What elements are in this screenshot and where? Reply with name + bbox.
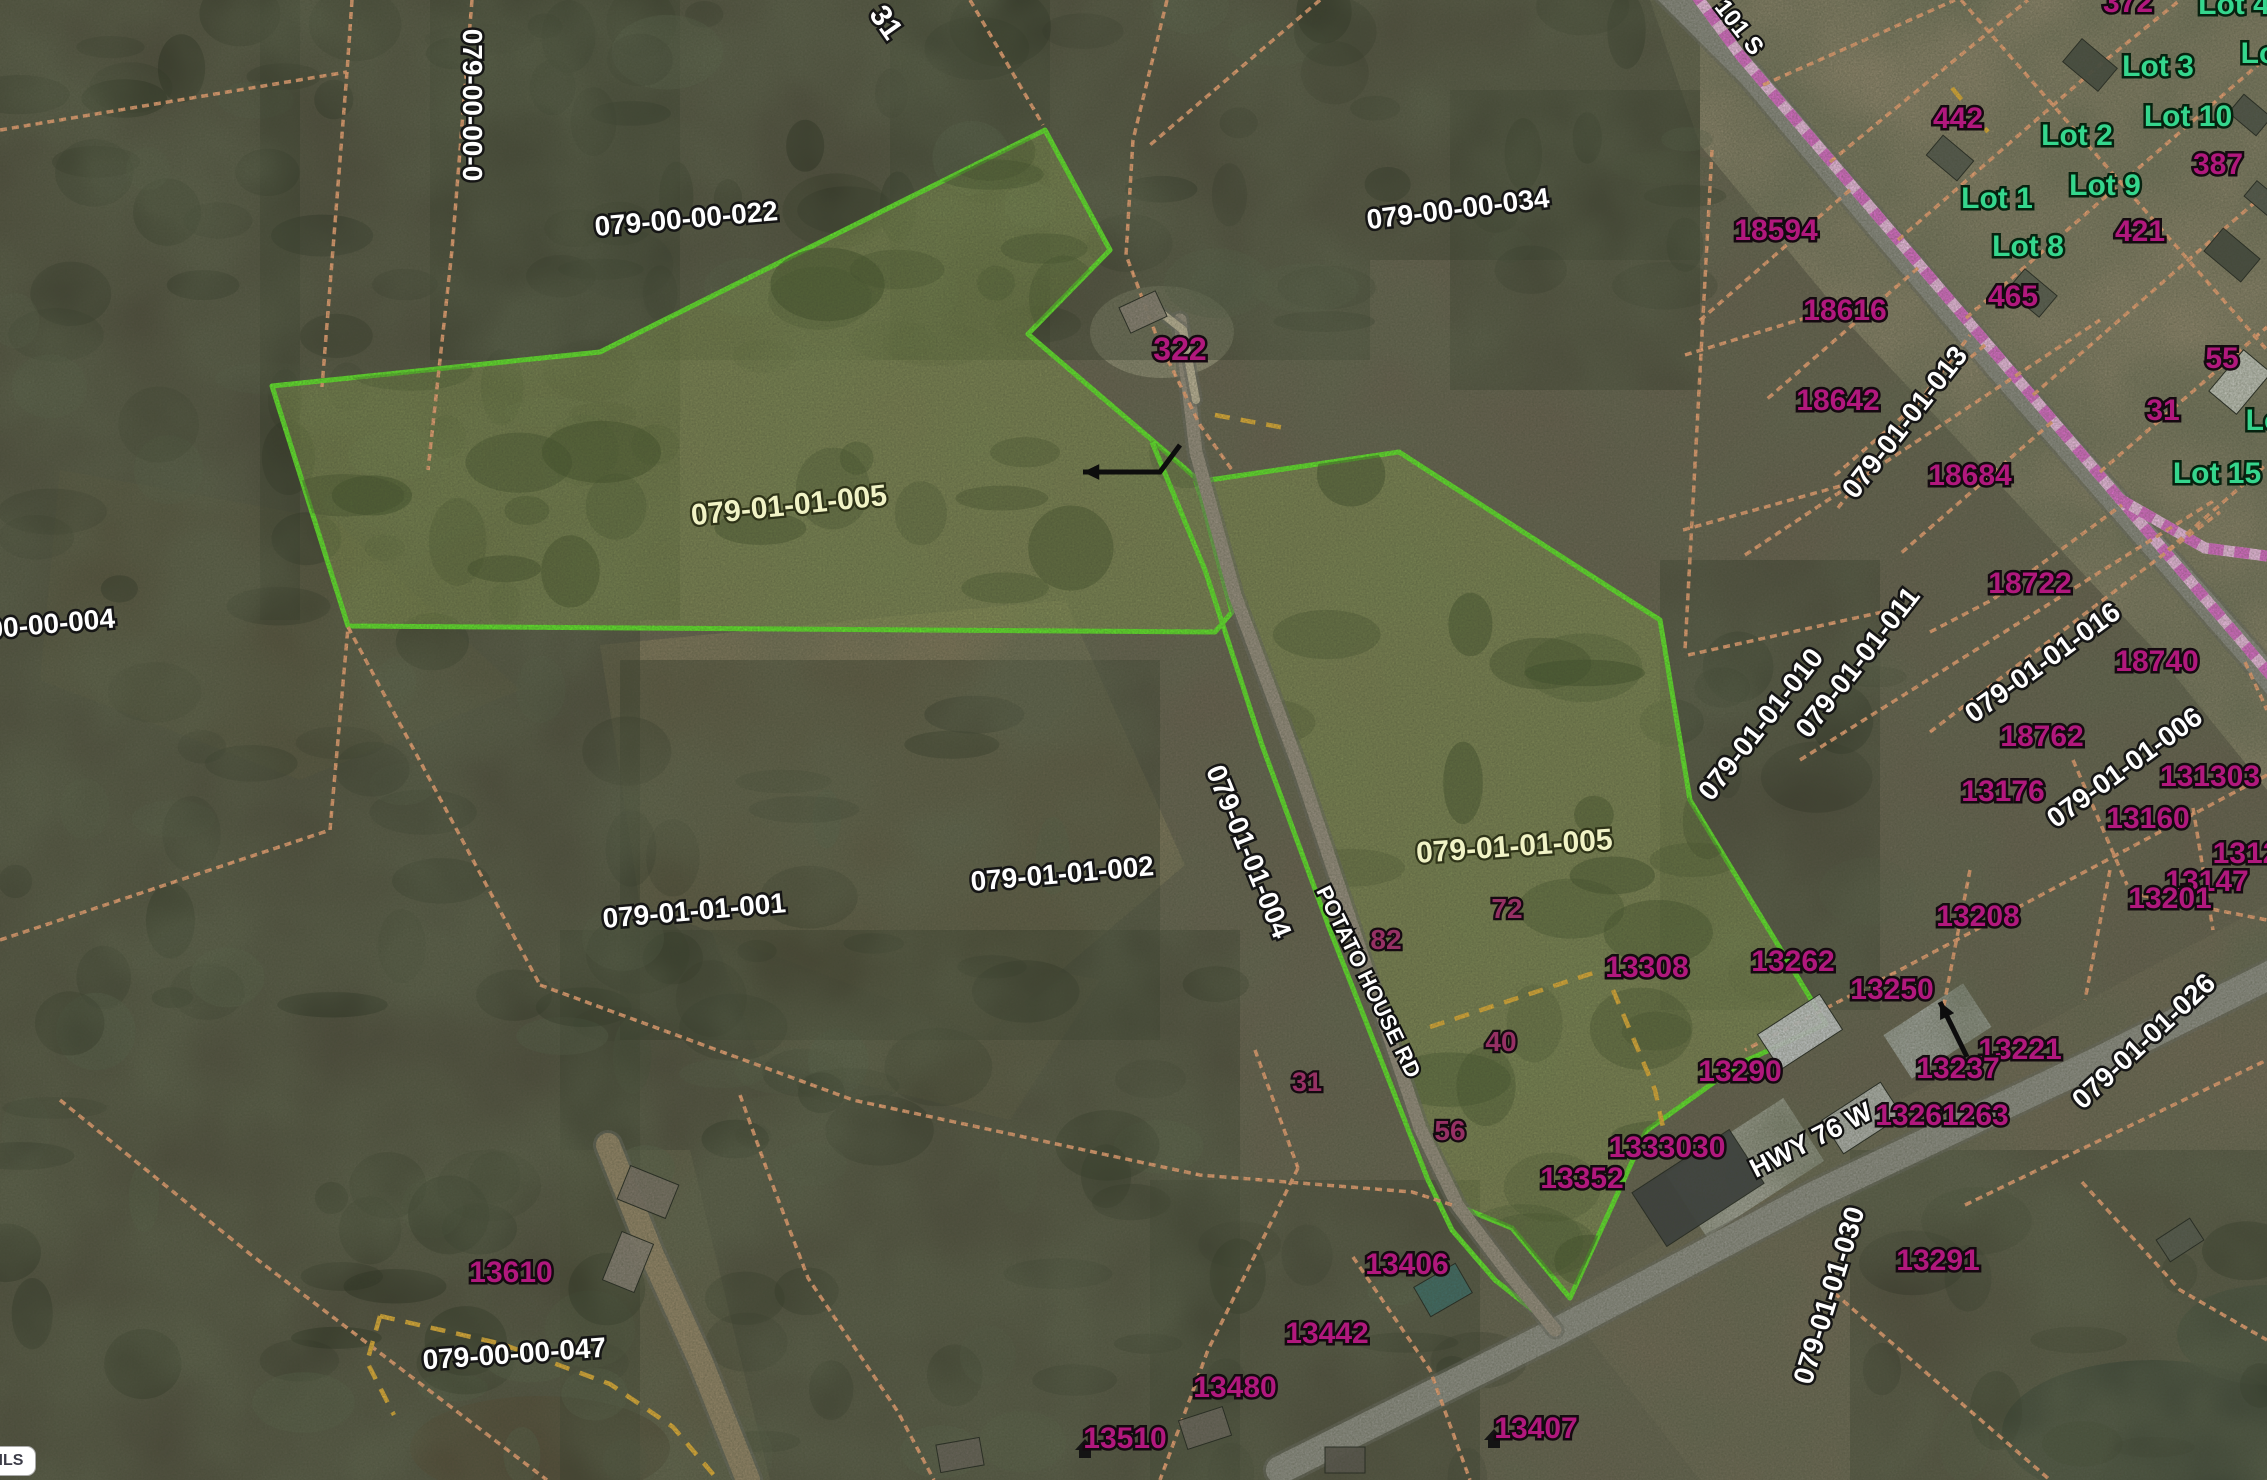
lot-number-label: Lot 8 [1992, 230, 2064, 263]
lot-number-label: Lot [2241, 37, 2267, 70]
address-number-label: 31 [2146, 394, 2179, 427]
address-number-label: 55 [2205, 342, 2238, 375]
address-number-label: 421 [2115, 215, 2165, 248]
parcel-map-canvas[interactable]: 079-00-00-022079-00-00-031079-00-00-0340… [0, 0, 2267, 1480]
address-number-label: 13610 [469, 1256, 552, 1289]
address-number-label: 131303 [2160, 760, 2260, 793]
address-number-label: 18740 [2115, 645, 2198, 678]
address-number-label: 13262 [1751, 945, 1834, 978]
lot-number-label: Lot 9 [2069, 169, 2141, 202]
map-viewport[interactable]: 079-00-00-022079-00-00-031079-00-00-0340… [0, 0, 2267, 1480]
address-number-label: 18722 [1988, 567, 2071, 600]
address-number-label: 442 [1933, 102, 1983, 135]
lot-number-label: Lot 4 [2198, 0, 2267, 21]
lot-number-label: Lo [2246, 404, 2267, 437]
lot-number-label: Lot 1 [1961, 182, 2033, 215]
address-number-label: 18616 [1803, 294, 1886, 327]
parcel-id-label: 079-00-00-0 [457, 29, 488, 182]
address-number-label: 13291 [1896, 1244, 1979, 1277]
address-number-label: 13442 [1285, 1317, 1368, 1350]
address-number-label: 13237 [1916, 1052, 1999, 1085]
lot-number-label: Lot 3 [2122, 50, 2194, 83]
address-number-label: 13407 [1494, 1412, 1577, 1445]
address-number-small-label: 40 [1485, 1026, 1516, 1057]
address-number-label: 1333030 [1609, 1131, 1726, 1164]
address-number-label: 13290 [1698, 1055, 1781, 1088]
address-number-label: 13261263 [1875, 1099, 2008, 1132]
lot-number-label: Lot 2 [2041, 119, 2113, 152]
lot-number-label: Lot 15 [2173, 457, 2261, 490]
address-number-label: 465 [1988, 280, 2038, 313]
address-number-label: 387 [2193, 148, 2243, 181]
address-number-label: 13201 [2128, 882, 2211, 915]
address-number-label: 13510 [1083, 1422, 1166, 1455]
address-number-small-label: 31 [1292, 1067, 1322, 1097]
address-number-label: 322 [1153, 331, 1206, 367]
address-number-label: 13160 [2106, 802, 2189, 835]
address-number-small-label: 72 [1491, 893, 1522, 924]
address-number-label: 18684 [1928, 459, 2012, 492]
address-number-label: 372 [2103, 0, 2153, 19]
address-number-label: 18642 [1796, 384, 1879, 417]
address-number-label: 13308 [1605, 951, 1688, 984]
mls-watermark: ggarMLS [0, 1446, 36, 1476]
address-number-label: 18762 [2000, 720, 2083, 753]
address-number-label: 13176 [1961, 775, 2044, 808]
address-number-label: 13250 [1850, 973, 1933, 1006]
address-number-small-label: 82 [1370, 924, 1401, 955]
address-number-label: 13406 [1365, 1248, 1448, 1281]
address-number-small-label: 56 [1434, 1115, 1465, 1146]
lot-number-label: Lot 10 [2144, 100, 2232, 133]
address-number-label: 13480 [1193, 1371, 1276, 1404]
address-number-label: 18594 [1734, 214, 1818, 247]
address-number-label: 13208 [1936, 900, 2019, 933]
address-number-label: 13352 [1540, 1162, 1623, 1195]
